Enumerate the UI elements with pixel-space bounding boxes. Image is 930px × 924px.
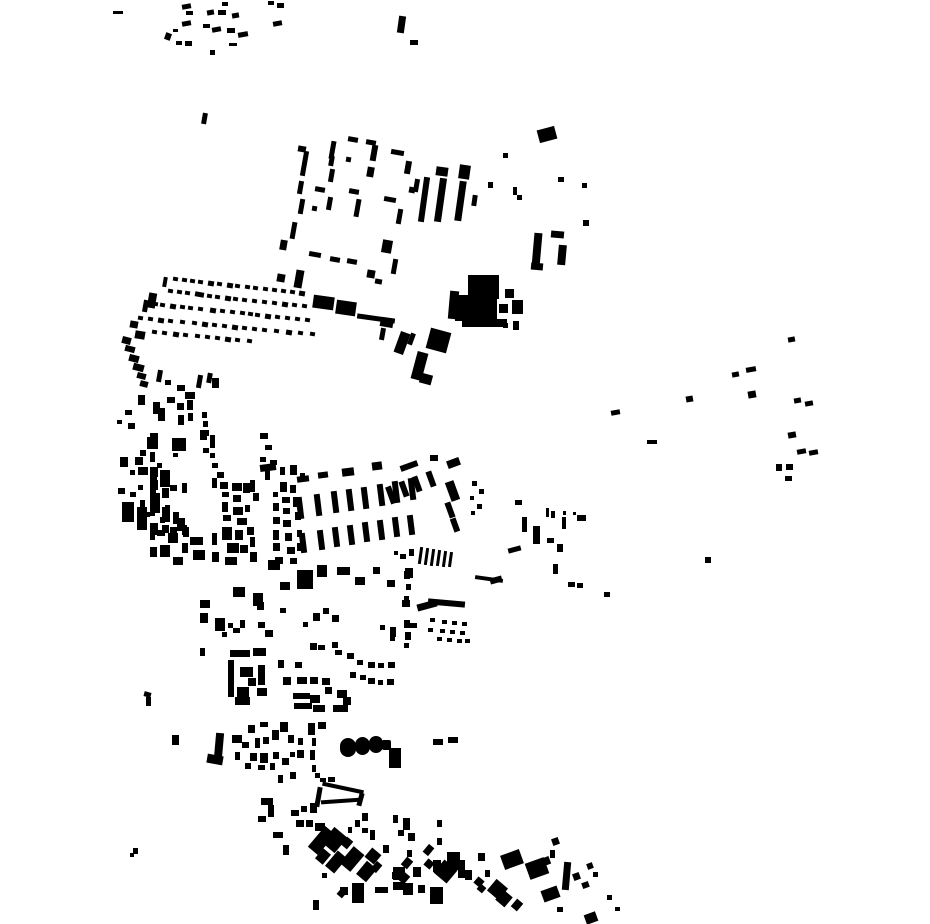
building-footprint [188,413,193,421]
building-footprint [557,245,567,266]
building-footprint [404,643,409,648]
building-footprint [170,485,177,491]
building-footprint [173,29,178,32]
building-footprint [273,752,279,759]
building-footprint [237,687,249,697]
building-footprint [375,887,388,893]
building-footprint [143,691,151,698]
building-footprint [265,314,272,320]
building-footprint [366,269,375,278]
building-footprint [290,290,296,295]
building-footprint [203,448,209,453]
building-footprint [393,867,405,880]
building-footprint [128,423,135,429]
building-footprint [586,862,594,870]
building-footprint [362,828,368,833]
building-footprint [225,557,237,565]
building-footprint [472,481,477,486]
building-footprint [355,820,360,827]
building-footprint [404,161,412,175]
building-footprint [377,484,386,507]
building-footprint [522,517,527,532]
building-footprint [362,813,368,821]
building-footprint [150,468,157,481]
building-footprint [404,571,410,579]
building-footprint [290,558,297,564]
building-footprint [377,520,385,541]
building-footprint [515,500,522,505]
building-footprint [333,705,348,712]
building-footprint [160,517,165,523]
building-footprint [260,753,268,763]
building-footprint [210,308,217,314]
building-footprint [318,722,326,729]
building-footprint [207,294,213,299]
building-footprint [403,883,413,895]
building-footprint [337,690,347,698]
building-footprint [182,3,192,9]
building-footprint [173,277,179,282]
building-footprint [408,833,415,841]
building-footprint [138,316,144,321]
building-footprint [372,461,383,470]
building-footprint [222,324,228,329]
building-footprint [283,520,291,527]
building-footprint [437,838,442,845]
building-footprint [577,515,586,521]
building-footprint [291,810,299,816]
building-footprint [227,543,239,553]
building-footprint [368,678,375,684]
building-footprint [202,412,207,418]
building-footprint [182,278,188,283]
building-footprint [265,445,272,450]
building-footprint [317,565,327,577]
building-footprint [212,323,218,328]
building-footprint [387,580,395,587]
building-footprint [375,278,383,284]
building-footprint [150,533,155,540]
building-footprint [397,16,406,34]
building-footprint [150,508,155,516]
building-footprint [118,488,125,494]
building-footprint [404,620,410,628]
building-footprint [121,336,132,345]
building-footprint [229,43,237,46]
building-footprint [162,492,168,497]
building-footprint [148,317,154,322]
building-footprint [232,735,242,743]
building-footprint [212,26,222,32]
building-footprint [248,678,256,686]
building-footprint [407,515,415,536]
building-footprint [258,765,265,770]
building-footprint [426,328,452,354]
building-footprint [210,435,215,448]
building-footprint [182,483,187,493]
building-footprint [568,582,575,587]
building-footprint [513,321,519,330]
building-footprint [443,867,453,875]
building-footprint [384,196,397,203]
building-footprint [310,643,317,650]
building-footprint [198,307,204,312]
building-footprint [290,485,296,493]
building-footprint [562,517,566,529]
building-footprint [268,560,280,570]
building-footprint [400,554,406,559]
building-footprint [533,526,540,544]
building-footprint [129,320,138,328]
building-footprint [299,291,306,297]
building-footprint [165,505,170,515]
building-footprint [282,302,289,308]
building-footprint [337,567,350,575]
building-footprint [285,533,292,541]
building-footprint [278,775,283,783]
building-footprint [394,551,398,555]
building-footprint [222,2,228,6]
building-footprint [584,911,599,924]
building-footprint [286,330,293,336]
building-footprint [315,186,326,193]
building-footprint [185,392,195,399]
building-footprint [794,397,802,403]
building-footprint [235,338,241,343]
building-footprint [172,735,179,745]
building-footprint [257,688,267,696]
building-footprint [508,545,522,553]
building-footprint [225,337,232,343]
building-footprint [168,289,174,294]
building-footprint [217,282,223,287]
building-footprint [265,630,273,637]
building-footprint [182,543,188,553]
building-footprint [187,400,193,410]
building-footprint [298,331,304,336]
building-footprint [280,608,286,613]
building-footprint [150,547,157,557]
building-footprint [511,899,524,912]
building-footprint [222,502,228,512]
building-footprint [379,328,386,341]
building-footprint [505,289,514,298]
building-footprint [172,438,186,451]
building-footprint [335,650,342,655]
building-footprint [258,816,266,822]
building-footprint [348,136,359,143]
building-footprint [260,722,268,727]
building-footprint [212,463,218,468]
building-footprint [122,502,134,522]
building-footprint [146,697,151,706]
building-footprint [330,256,341,263]
building-footprint [310,677,318,684]
building-footprint [398,830,404,836]
building-footprint [227,283,234,289]
building-footprint [551,511,555,518]
building-footprint [192,321,198,326]
building-footprint [604,592,610,597]
building-footprint [435,166,448,177]
building-footprint [786,464,793,470]
building-footprint [746,366,757,373]
building-footprint [294,703,312,709]
building-footprint [253,493,259,501]
building-footprint [442,551,447,567]
building-footprint [436,550,441,566]
building-footprint [150,452,155,462]
building-footprint [215,618,225,631]
building-footprint [437,820,442,827]
building-footprint [135,457,143,465]
building-footprint [130,492,136,497]
building-footprint [366,166,375,177]
building-footprint [410,623,417,628]
building-footprint [405,632,411,640]
building-footprint [138,467,148,475]
building-footprint [282,758,289,765]
building-footprint [125,410,132,415]
building-footprint [369,736,383,753]
building-footprint [513,187,517,195]
building-footprint [368,662,375,668]
building-footprint [233,587,245,597]
building-footprint [177,385,185,391]
building-footprint [357,660,363,665]
building-footprint [150,433,158,445]
building-footprint [310,750,315,760]
building-footprint [273,530,279,540]
building-footprint [173,512,179,524]
building-footprint [228,660,234,697]
building-footprint [250,753,257,761]
building-footprint [370,145,379,162]
building-footprint [477,504,482,509]
building-footprint [233,297,239,302]
building-footprint [391,259,399,275]
building-footprint [150,483,156,493]
building-footprint [788,336,796,342]
building-footprint [247,339,253,344]
building-footprint [200,600,210,608]
building-footprint [273,543,280,551]
building-footprint [340,846,365,872]
building-footprint [283,508,290,514]
building-footprint [255,738,260,748]
building-footprint [130,470,135,475]
building-footprint [160,545,170,557]
building-footprint [350,672,356,678]
building-footprint [805,400,814,406]
building-footprint [362,522,370,543]
building-footprint [553,564,558,574]
building-footprint [273,517,280,524]
building-footprint [458,164,471,179]
building-footprint [208,281,215,287]
building-footprint [312,295,335,311]
building-footprint [328,777,335,782]
building-footprint [165,380,171,385]
building-footprint [186,11,193,15]
building-footprint [378,663,384,668]
building-footprint [202,322,209,328]
building-footprint [263,737,269,744]
building-footprint [173,453,178,457]
building-footprint [253,648,266,656]
building-footprint [540,885,560,902]
building-footprint [262,300,268,305]
building-footprint [252,327,258,332]
building-footprint [705,557,711,563]
building-footprint [450,630,455,634]
building-footprint [218,10,226,15]
building-footprint [465,870,472,880]
building-footprint [240,620,245,628]
building-footprint [232,483,242,491]
building-footprint [557,907,563,912]
building-footprint [195,334,201,339]
building-footprint [275,315,281,320]
building-footprint [346,157,352,163]
building-footprint [320,778,326,782]
building-footprint [383,845,389,853]
building-footprint [478,853,485,861]
building-footprint [210,453,215,458]
building-footprint [457,639,462,643]
building-footprint [462,319,507,327]
building-footprint [332,642,338,648]
building-footprint [531,262,544,270]
building-footprint [203,421,208,427]
building-footprint [460,631,465,635]
building-footprint [546,508,549,517]
building-footprint [389,748,401,768]
building-footprint [228,623,233,628]
building-footprint [183,333,189,338]
building-footprint [245,763,251,769]
building-footprint [547,538,554,543]
building-footprint [240,667,253,677]
building-footprint [257,602,264,610]
building-footprint [190,537,203,545]
building-footprint [235,530,243,540]
building-footprint [378,680,383,685]
building-footprint [392,517,400,538]
building-footprint [157,530,165,536]
building-footprint [448,552,453,567]
building-footprint [418,885,425,893]
building-footprint [230,650,250,657]
building-footprint [785,476,792,481]
building-footprint [347,525,355,546]
building-footprint [297,570,313,589]
building-footprint [287,547,295,554]
building-footprint [512,300,523,314]
building-footprint [306,820,313,827]
building-footprint [557,544,563,552]
building-footprint [272,730,279,740]
building-footprint [647,440,657,444]
building-footprint [418,177,430,222]
building-footprint [413,867,421,877]
building-footprint [325,687,332,694]
building-footprint [134,330,145,340]
building-footprint [190,279,196,284]
building-footprint [343,697,351,705]
building-footprint [180,320,186,325]
building-footprint [318,471,329,478]
building-footprint [323,608,329,614]
building-footprint [488,182,493,188]
building-footprint [577,583,583,588]
building-footprint [503,323,508,328]
building-footprint [170,527,177,540]
building-footprint [132,363,144,373]
building-footprint [233,495,241,502]
building-footprint [128,354,139,363]
building-footprint [262,328,268,333]
building-footprint [230,310,236,315]
building-footprint [340,738,356,757]
building-footprint [270,763,275,770]
building-footprint [235,752,240,760]
building-footprint [312,206,318,212]
building-footprint [313,613,320,621]
building-footprint [406,584,411,590]
building-footprint [277,3,284,8]
building-footprint [302,304,308,309]
building-footprint [173,557,183,565]
building-footprint [222,632,227,637]
building-footprint [398,480,409,497]
building-footprint [342,467,355,476]
building-footprint [222,527,232,540]
building-footprint [280,582,290,590]
building-footprint [220,482,228,489]
building-footprint [217,472,224,478]
building-footprint [537,126,558,143]
building-footprint [176,41,182,45]
building-footprint [440,629,445,633]
building-footprint [295,662,302,668]
building-footprint [158,318,165,324]
building-footprint [153,500,160,507]
building-footprint [332,527,340,548]
building-footprint [310,803,317,813]
building-footprint [500,849,524,870]
building-footprint [157,463,162,468]
building-footprint [349,188,360,195]
building-footprint [238,31,249,38]
building-footprint [581,881,590,889]
building-footprint [297,750,304,758]
building-footprint [182,525,187,535]
building-footprint [418,547,423,564]
building-footprint [212,478,217,488]
building-footprint [240,545,248,553]
building-footprint [391,149,405,156]
building-footprint [419,373,433,386]
building-footprint [138,395,145,405]
building-footprint [430,887,443,904]
building-footprint [279,239,288,250]
building-footprint [298,199,306,215]
building-footprint [403,818,410,830]
building-footprint [315,773,320,778]
building-footprint [458,860,465,878]
building-footprint [173,332,180,338]
